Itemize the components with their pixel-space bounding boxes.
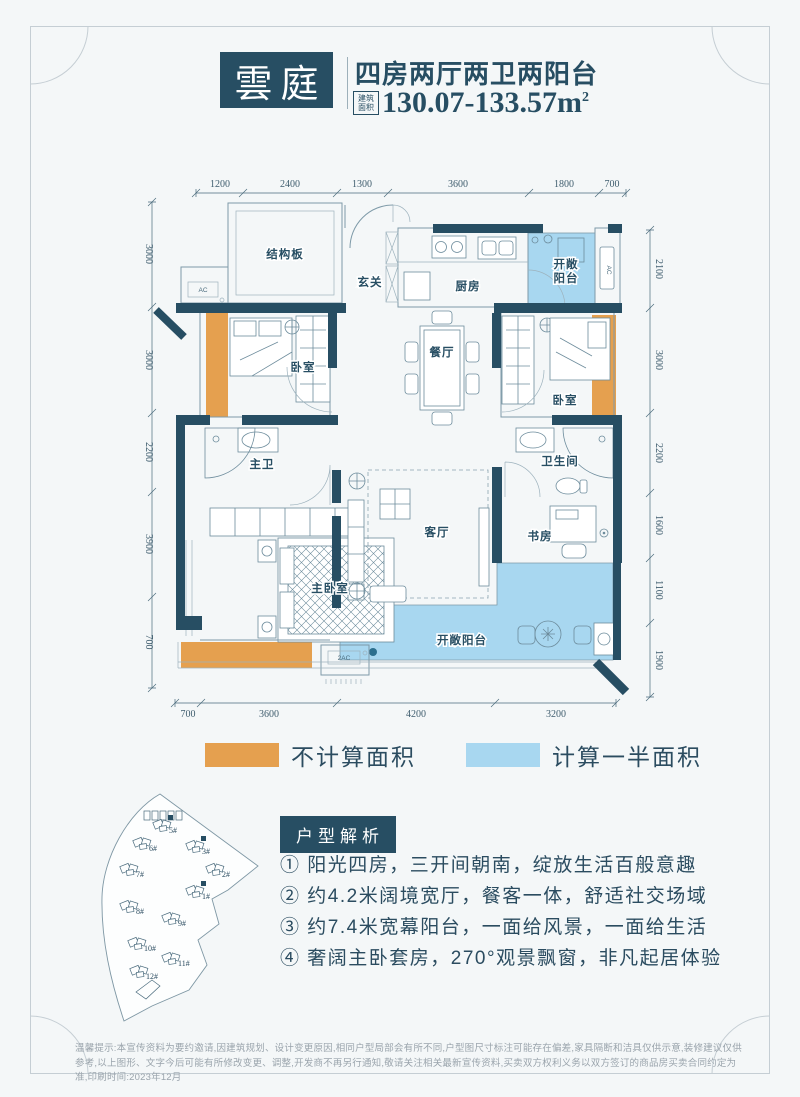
svg-text:10#: 10#	[144, 944, 156, 953]
room-bath: 卫生间	[541, 454, 579, 468]
svg-text:AC: AC	[605, 265, 612, 274]
room-dining: 餐厅	[429, 345, 455, 359]
room-structural: 结构板	[265, 247, 304, 261]
svg-text:2400: 2400	[280, 179, 300, 190]
svg-text:11#: 11#	[178, 959, 190, 968]
svg-text:3#: 3#	[202, 847, 210, 856]
svg-text:3000: 3000	[653, 350, 664, 370]
room-master-bedroom: 主卧室	[311, 581, 349, 595]
room-living: 客厅	[424, 525, 450, 539]
svg-text:1100: 1100	[653, 580, 664, 600]
analysis-item: ③ 约7.4米宽幕阳台，一面给风景，一面给生活	[280, 912, 700, 943]
legend-label-half-counted: 计算一半面积	[552, 738, 702, 772]
room-balcony-bottom: 开敞阳台	[437, 633, 487, 647]
area-tag: 建筑 面积	[353, 91, 379, 115]
area-value: 130.07-133.57m2	[382, 83, 589, 118]
ac-label: AC	[198, 287, 207, 294]
room-bedroom-right: 卧室	[553, 393, 578, 407]
svg-text:3900: 3900	[143, 534, 154, 554]
room-foyer: 玄关	[358, 275, 383, 289]
svg-text:3200: 3200	[546, 709, 566, 720]
svg-text:4200: 4200	[406, 709, 426, 720]
svg-text:700: 700	[143, 635, 154, 650]
legend-swatch-orange	[205, 743, 279, 767]
svg-text:阳台: 阳台	[554, 271, 579, 285]
analysis-item: ① 阳光四房，三开间朝南，绽放生活百般意趣	[280, 850, 700, 881]
project-logo-text: 雲庭	[226, 53, 326, 108]
svg-text:3000: 3000	[143, 350, 154, 370]
svg-text:9#: 9#	[178, 919, 186, 928]
site-plan: 5# 6# 3# 2# 7# 1# 8#	[85, 780, 280, 1035]
header-divider	[347, 57, 348, 109]
svg-text:2200: 2200	[653, 443, 664, 463]
flyer-page: { "header": { "logo": "雲庭", "title": "四房…	[0, 0, 800, 1097]
disclaimer-text: 温馨提示:本宣传资料为要约邀请,因建筑规划、设计变更原因,相同户型局部会有所不同…	[75, 1042, 747, 1086]
svg-text:7#: 7#	[136, 870, 144, 879]
ac2-label: 2AC	[338, 655, 351, 662]
svg-text:2#: 2#	[222, 870, 230, 879]
svg-text:1900: 1900	[653, 650, 664, 670]
analysis-badge: 户型解析	[280, 816, 396, 853]
analysis-item: ④ 奢阔主卧套房，270°观景飘窗，非凡起居体验	[280, 943, 700, 974]
svg-text:3000: 3000	[143, 244, 154, 264]
svg-text:3600: 3600	[259, 709, 279, 720]
svg-text:700: 700	[181, 709, 196, 720]
svg-text:5#: 5#	[169, 826, 177, 835]
area-row: 建筑 面积 130.07-133.57m2	[353, 83, 589, 118]
room-balcony-top: 开敞	[554, 257, 579, 271]
analysis-item: ② 约4.2米阔境宽厅，餐客一体，舒适社交场域	[280, 881, 700, 912]
legend-label-not-counted: 不计算面积	[291, 738, 416, 772]
room-study: 书房	[528, 529, 553, 543]
svg-text:1#: 1#	[202, 892, 210, 901]
svg-text:700: 700	[605, 179, 620, 190]
svg-text:1300: 1300	[352, 179, 372, 190]
svg-text:12#: 12#	[146, 972, 158, 981]
svg-text:3600: 3600	[448, 179, 468, 190]
project-logo: 雲庭	[220, 52, 333, 108]
svg-text:2100: 2100	[653, 259, 664, 279]
analysis-list: ① 阳光四房，三开间朝南，绽放生活百般意趣 ② 约4.2米阔境宽厅，餐客一体，舒…	[280, 850, 700, 974]
svg-text:8#: 8#	[136, 907, 144, 916]
svg-text:1200: 1200	[210, 179, 230, 190]
floor-plan: 结构板 玄关 厨房 开敞 阳台 卧室 餐厅 卧室 主卫 卫生间 主卧室 客厅 书…	[130, 160, 675, 735]
room-bedroom-left: 卧室	[291, 360, 316, 374]
svg-text:6#: 6#	[149, 844, 157, 853]
room-kitchen: 厨房	[456, 279, 481, 293]
legend: 不计算面积 计算一半面积	[205, 738, 752, 772]
svg-text:1800: 1800	[554, 179, 574, 190]
room-master-bath: 主卫	[250, 457, 275, 471]
svg-text:2200: 2200	[143, 442, 154, 462]
svg-text:1600: 1600	[653, 515, 664, 535]
legend-swatch-blue	[466, 743, 540, 767]
